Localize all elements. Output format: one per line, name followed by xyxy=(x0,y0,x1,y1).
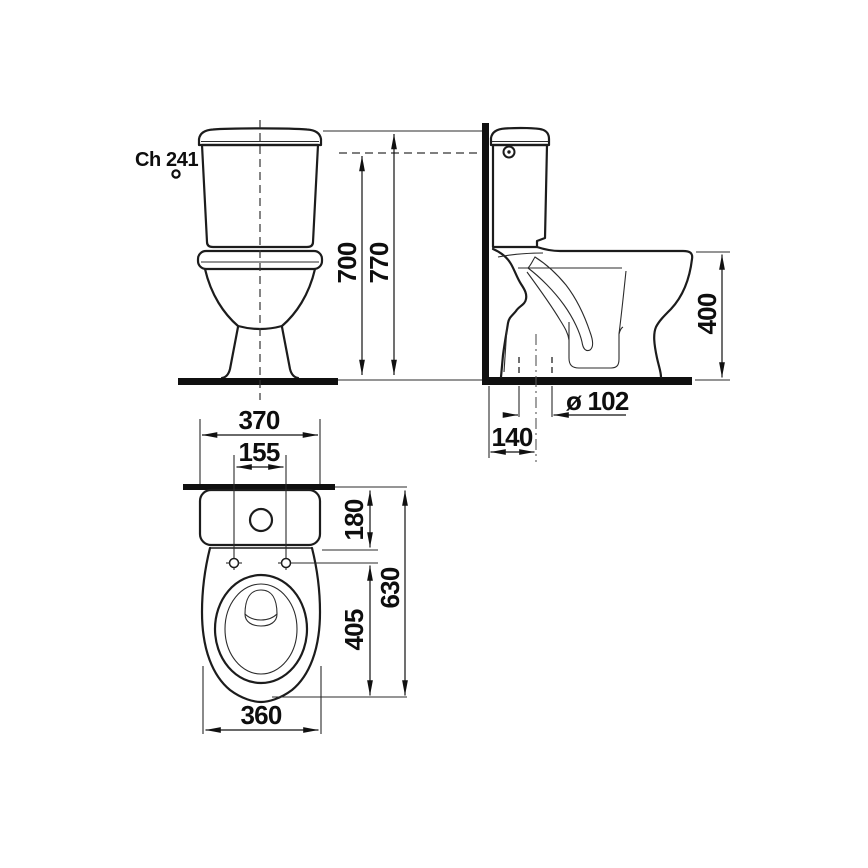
dim-770-label: 770 xyxy=(364,242,394,283)
product-code-marker-icon xyxy=(172,170,179,177)
dim-180-label: 180 xyxy=(339,499,369,540)
flush-button-top-icon xyxy=(250,509,272,531)
dimension-bowl-height-400: 400 xyxy=(692,252,730,380)
dimension-holes-spacing-155: 155 xyxy=(237,437,284,467)
dim-370-label: 370 xyxy=(239,405,280,435)
front-view: Ch 241 xyxy=(135,120,482,400)
drawing-canvas: Ch 241 700 770 xyxy=(0,0,868,868)
dim-400-label: 400 xyxy=(692,293,722,334)
dim-360-label: 360 xyxy=(241,700,282,730)
product-code-label: Ch 241 xyxy=(135,149,198,171)
dim-630-label: 630 xyxy=(375,567,405,608)
dimension-outlet-offset-140: 140 xyxy=(489,386,535,458)
fixing-hole-right-icon xyxy=(282,559,291,568)
dim-outlet-diameter-label: ø 102 xyxy=(566,386,629,416)
dimension-wall-to-hinge-180: 180 xyxy=(322,491,378,551)
dim-140-label: 140 xyxy=(492,422,533,452)
dim-700-label: 700 xyxy=(332,242,362,283)
dimension-outlet-diameter-102: ø 102 xyxy=(503,386,629,417)
dim-155-label: 155 xyxy=(239,437,280,467)
technical-drawing-toilet: Ch 241 700 770 xyxy=(0,0,868,868)
dimension-height-700: 700 xyxy=(332,153,482,375)
dim-405-label: 405 xyxy=(339,609,369,650)
top-view xyxy=(183,455,407,702)
fixing-hole-left-icon xyxy=(230,559,239,568)
